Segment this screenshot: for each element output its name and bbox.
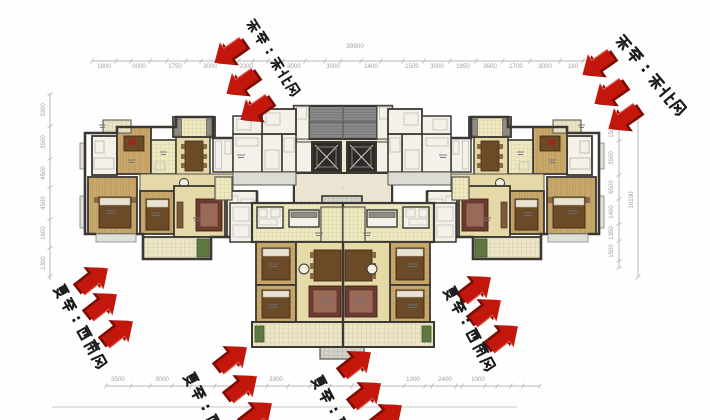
svg-text:1300: 1300 (41, 256, 47, 270)
svg-text:1500: 1500 (405, 63, 419, 70)
svg-text:2400: 2400 (438, 376, 452, 383)
svg-text:1350: 1350 (609, 226, 615, 240)
svg-text:1000: 1000 (471, 376, 485, 383)
svg-text:0000: 0000 (132, 63, 146, 70)
svg-text:3000: 3000 (155, 376, 169, 383)
svg-text:180: 180 (568, 63, 579, 70)
svg-text:1400: 1400 (609, 205, 615, 219)
svg-text:3500: 3500 (111, 376, 125, 383)
svg-text:3300: 3300 (41, 103, 47, 117)
svg-text:39900: 39900 (346, 43, 364, 50)
svg-text:3600: 3600 (483, 63, 497, 70)
svg-text:4500: 4500 (41, 196, 47, 210)
svg-text:▫: ▫ (342, 186, 344, 192)
svg-text:1600: 1600 (41, 226, 47, 240)
svg-text:1300: 1300 (406, 376, 420, 383)
svg-text:1800: 1800 (97, 63, 111, 70)
svg-text:1500: 1500 (609, 244, 615, 258)
svg-text:3000: 3000 (538, 63, 552, 70)
svg-text:1700: 1700 (509, 63, 523, 70)
svg-text:3500: 3500 (41, 135, 47, 149)
svg-text:3500: 3500 (609, 151, 615, 165)
svg-text:1750: 1750 (168, 63, 182, 70)
svg-text:6500: 6500 (609, 180, 615, 194)
svg-text:1400: 1400 (364, 63, 378, 70)
svg-text:1950: 1950 (456, 63, 470, 70)
svg-text:3000: 3000 (203, 63, 217, 70)
svg-text:3000: 3000 (326, 63, 340, 70)
svg-text:3000: 3000 (430, 63, 444, 70)
svg-text:3000: 3000 (287, 63, 301, 70)
svg-text:4500: 4500 (41, 166, 47, 180)
svg-text:16100: 16100 (628, 191, 635, 209)
svg-text:3300: 3300 (269, 376, 283, 383)
